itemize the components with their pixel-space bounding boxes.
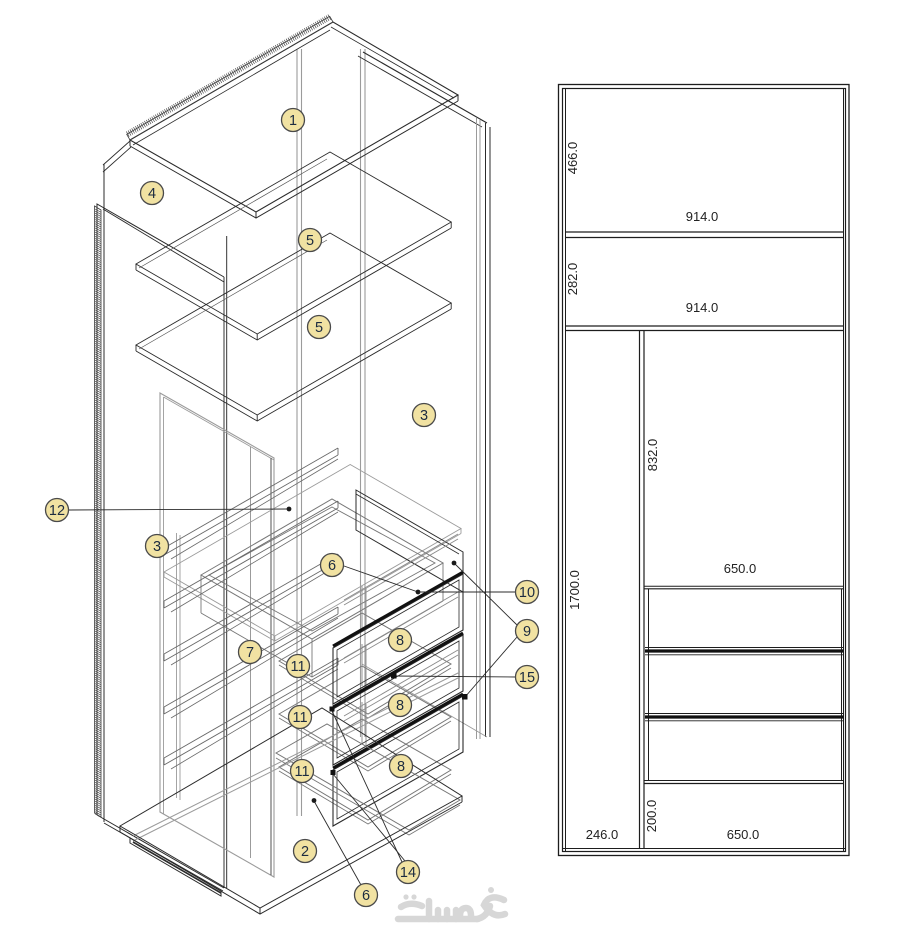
- svg-text:650.0: 650.0: [727, 827, 760, 842]
- svg-text:14: 14: [400, 865, 416, 881]
- svg-text:6: 6: [362, 888, 370, 904]
- svg-text:5: 5: [306, 233, 314, 249]
- svg-text:8: 8: [396, 633, 404, 649]
- svg-text:8: 8: [396, 698, 404, 714]
- svg-text:832.0: 832.0: [645, 439, 660, 472]
- svg-text:466.0: 466.0: [565, 142, 580, 175]
- svg-text:11: 11: [292, 710, 307, 726]
- svg-text:10: 10: [519, 585, 535, 601]
- svg-text:1700.0: 1700.0: [567, 570, 582, 610]
- svg-text:1: 1: [289, 113, 297, 129]
- svg-text:11: 11: [294, 764, 309, 780]
- svg-text:4: 4: [148, 186, 156, 202]
- svg-text:9: 9: [523, 624, 531, 640]
- svg-text:3: 3: [420, 408, 428, 424]
- svg-text:7: 7: [246, 645, 254, 661]
- svg-text:200.0: 200.0: [644, 800, 659, 833]
- svg-text:282.0: 282.0: [565, 263, 580, 296]
- svg-text:11: 11: [290, 659, 305, 675]
- svg-text:8: 8: [397, 759, 405, 775]
- svg-text:246.0: 246.0: [586, 827, 619, 842]
- svg-text:914.0: 914.0: [686, 300, 719, 315]
- svg-text:650.0: 650.0: [724, 561, 757, 576]
- svg-text:5: 5: [315, 320, 323, 336]
- svg-text:6: 6: [328, 558, 336, 574]
- svg-text:2: 2: [301, 844, 309, 860]
- svg-text:15: 15: [519, 670, 535, 686]
- svg-text:3: 3: [153, 539, 161, 555]
- svg-text:12: 12: [49, 503, 65, 519]
- svg-text:914.0: 914.0: [686, 209, 719, 224]
